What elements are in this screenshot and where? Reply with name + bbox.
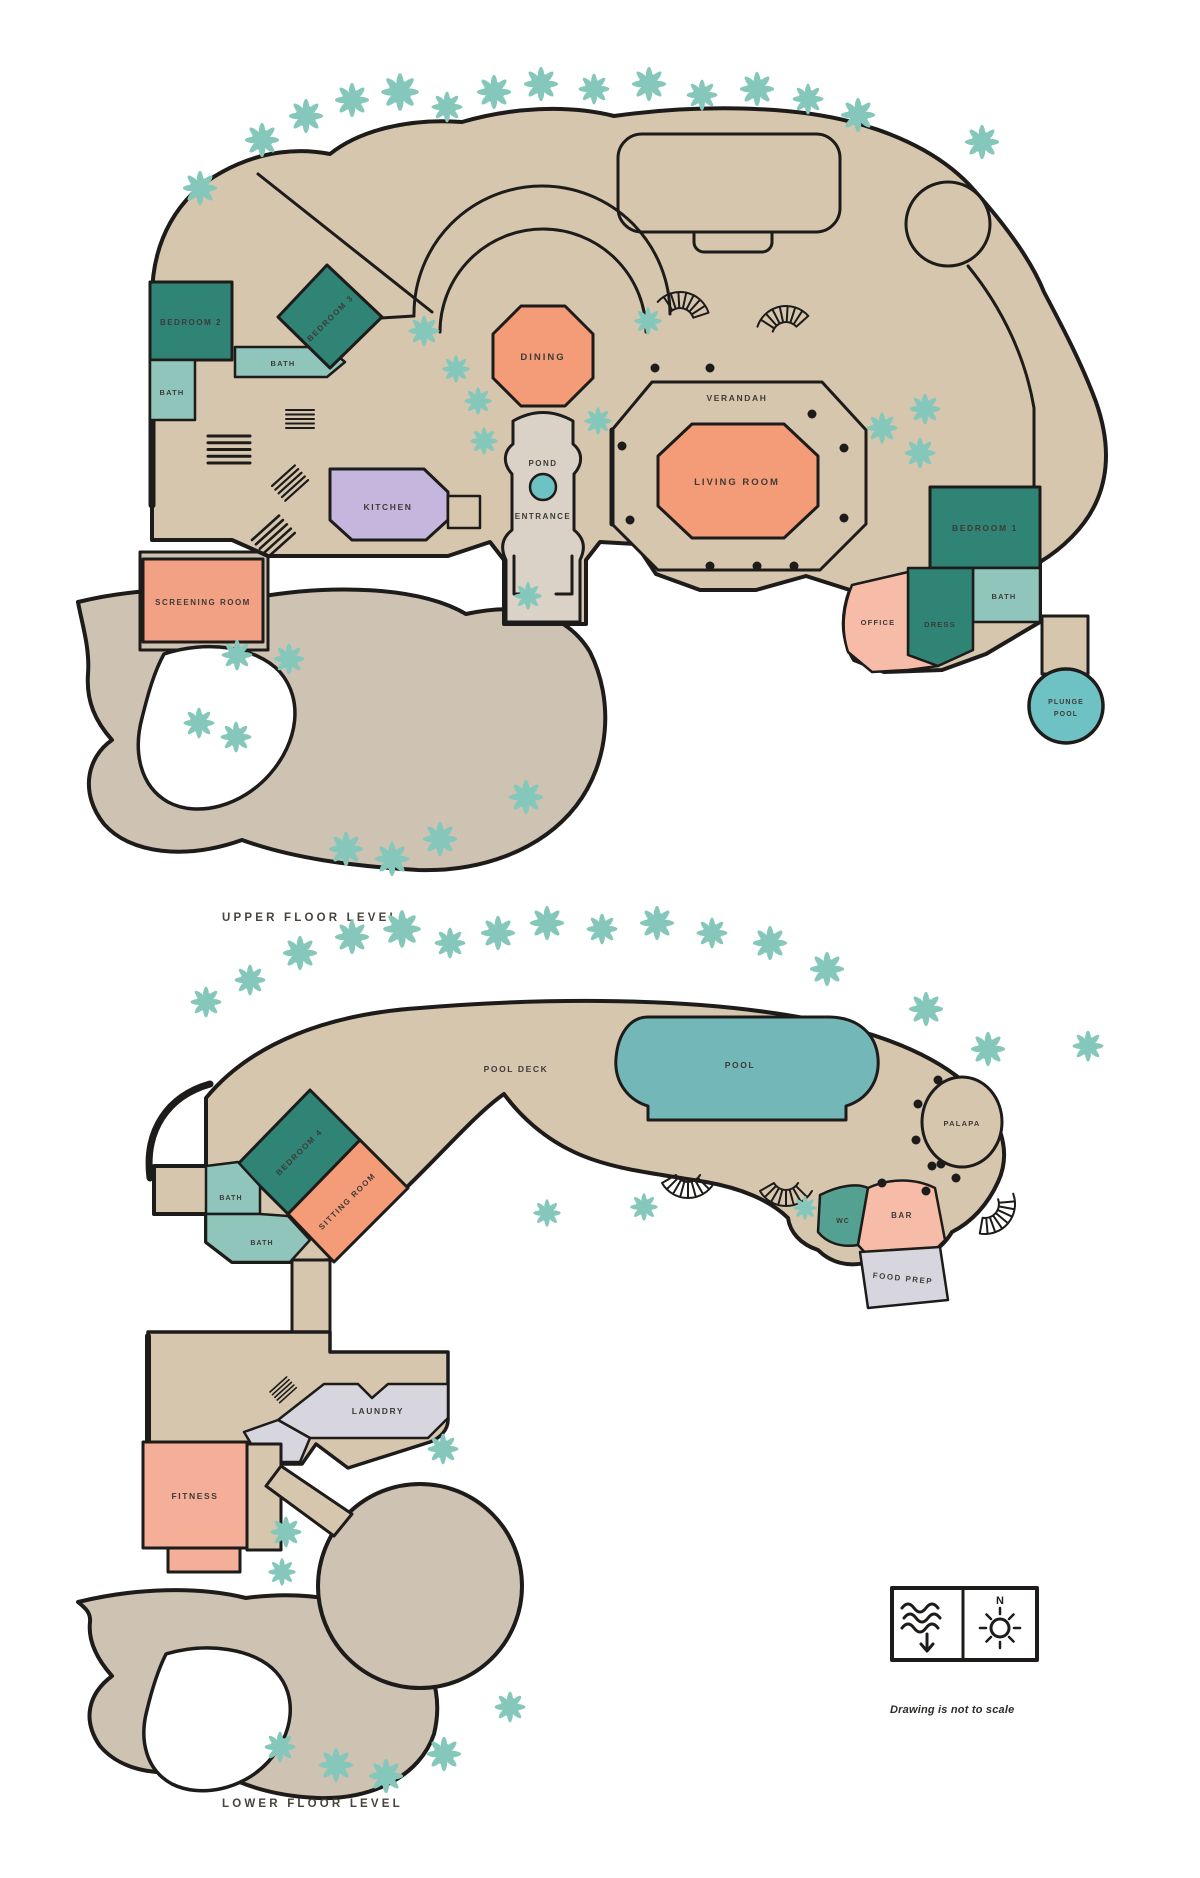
palm-tree-icon xyxy=(697,918,728,949)
palm-tree-icon xyxy=(428,1434,459,1465)
palm-tree-icon xyxy=(584,407,611,434)
palm-tree-icon xyxy=(329,832,363,866)
palm-tree-icon xyxy=(867,413,898,444)
room-label: BATH xyxy=(270,359,295,368)
floor-plan-lower: POOL DECK POOL PALAPA BEDROOM 4 SITTING … xyxy=(78,906,1103,1810)
palm-tree-icon xyxy=(283,936,317,970)
palm-tree-icon xyxy=(587,914,618,945)
palm-tree-icon xyxy=(268,1558,295,1585)
room-label: POND xyxy=(528,459,557,468)
room-label: FITNESS xyxy=(171,1491,218,1501)
kitchen-island xyxy=(448,496,480,528)
palm-tree-icon xyxy=(481,916,515,950)
palm-tree-icon xyxy=(184,708,215,739)
palm-tree-icon xyxy=(381,73,419,111)
scale-note: Drawing is not to scale xyxy=(890,1704,1014,1716)
room-label: POOL DECK xyxy=(484,1064,549,1074)
palm-tree-icon xyxy=(319,1748,353,1782)
palm-tree-icon xyxy=(514,582,541,609)
room-label: LIVING ROOM xyxy=(694,477,780,488)
room-label: DINING xyxy=(520,352,565,363)
palm-tree-icon xyxy=(442,355,469,382)
palm-tree-icon xyxy=(375,842,409,876)
room-fitness-tab xyxy=(168,1548,240,1572)
palm-tree-icon xyxy=(435,928,466,959)
palm-tree-icon xyxy=(909,992,943,1026)
palm-tree-icon xyxy=(409,316,440,347)
palm-tree-icon xyxy=(971,1032,1005,1066)
palm-tree-icon xyxy=(910,394,941,425)
upper-top-right-turret xyxy=(906,182,990,266)
floor-title-lower: LOWER FLOOR LEVEL xyxy=(222,1798,403,1810)
palm-tree-icon xyxy=(579,74,610,105)
palm-tree-icon xyxy=(274,644,305,675)
palm-tree-icon xyxy=(271,1517,302,1548)
room-label: POOL xyxy=(725,1060,756,1070)
palm-tree-icon xyxy=(905,438,936,469)
palm-tree-icon xyxy=(477,75,511,109)
room-label: BAR xyxy=(891,1211,913,1220)
room-label: POOL xyxy=(1054,711,1078,718)
floor-plan-document: BEDROOM 2 BATH BATH BEDROOM 3 KITCHEN DI… xyxy=(0,0,1200,1878)
palm-tree-icon xyxy=(793,84,824,115)
room-label: BEDROOM 1 xyxy=(952,523,1018,533)
palm-tree-icon xyxy=(427,1737,461,1771)
palm-tree-icon xyxy=(793,1196,817,1220)
palm-tree-icon xyxy=(423,822,457,856)
palm-tree-icon xyxy=(509,780,543,814)
palm-tree-icon xyxy=(335,83,369,117)
room-dress xyxy=(908,568,973,666)
room-label: DRESS xyxy=(924,620,956,629)
palm-tree-icon xyxy=(687,80,718,111)
palm-tree-icon xyxy=(235,965,266,996)
palm-tree-icon xyxy=(289,99,323,133)
palm-tree-icon xyxy=(841,98,875,132)
palm-tree-icon xyxy=(221,722,252,753)
palm-tree-icon xyxy=(533,1199,560,1226)
palm-tree-icon xyxy=(632,67,666,101)
palm-tree-icon xyxy=(630,1193,657,1220)
floor-plan-canvas: BEDROOM 2 BATH BATH BEDROOM 3 KITCHEN DI… xyxy=(0,0,1200,1878)
room-label: ENTRANCE xyxy=(515,512,571,521)
palm-tree-icon xyxy=(335,920,369,954)
palm-tree-icon xyxy=(495,1692,526,1723)
plunge-pool-corridor xyxy=(1042,616,1088,674)
room-label: BATH xyxy=(159,388,184,397)
palm-tree-icon xyxy=(634,307,661,334)
pond-water-icon xyxy=(530,474,556,500)
palm-tree-icon xyxy=(753,926,787,960)
floor-plan-upper: BEDROOM 2 BATH BATH BEDROOM 3 KITCHEN DI… xyxy=(78,67,1106,924)
room-label: BATH xyxy=(250,1240,273,1247)
legend: N Drawing is not to scale xyxy=(890,1588,1037,1716)
lower-heavy-arc xyxy=(149,1084,210,1178)
room-label: KITCHEN xyxy=(364,502,413,512)
room-label: WC xyxy=(836,1218,850,1225)
palm-tree-icon xyxy=(369,1759,403,1793)
palm-tree-icon xyxy=(530,906,564,940)
room-label: PLUNGE xyxy=(1048,699,1084,706)
palm-tree-icon xyxy=(183,171,217,205)
palm-tree-icon xyxy=(1073,1031,1104,1062)
palm-tree-icon xyxy=(383,910,421,948)
palm-tree-icon xyxy=(245,123,279,157)
palm-tree-icon xyxy=(191,987,222,1018)
room-label: BATH xyxy=(991,592,1016,601)
upper-top-roof-rect xyxy=(618,134,840,232)
palm-tree-icon xyxy=(524,67,558,101)
room-label: OFFICE xyxy=(861,618,896,627)
palm-tree-icon xyxy=(740,72,774,106)
room-label: PALAPA xyxy=(944,1119,981,1128)
palm-tree-icon xyxy=(265,1732,296,1763)
palm-tree-icon xyxy=(464,387,491,414)
room-label: BEDROOM 2 xyxy=(160,318,222,327)
room-label: BATH xyxy=(219,1195,242,1202)
room-plunge-pool xyxy=(1029,669,1103,743)
palm-tree-icon xyxy=(470,427,497,454)
palm-tree-icon xyxy=(810,952,844,986)
room-bath-b xyxy=(206,1214,310,1262)
floor-title-upper: UPPER FLOOR LEVEL xyxy=(222,912,400,924)
room-label: VERANDAH xyxy=(707,393,768,403)
palm-tree-icon xyxy=(432,92,463,123)
room-label: LAUNDRY xyxy=(352,1406,404,1416)
palm-tree-icon xyxy=(222,640,253,671)
palm-tree-icon xyxy=(965,125,999,159)
room-label: SCREENING ROOM xyxy=(155,598,251,607)
palm-tree-icon xyxy=(640,906,674,940)
compass-north-label: N xyxy=(996,1595,1004,1607)
